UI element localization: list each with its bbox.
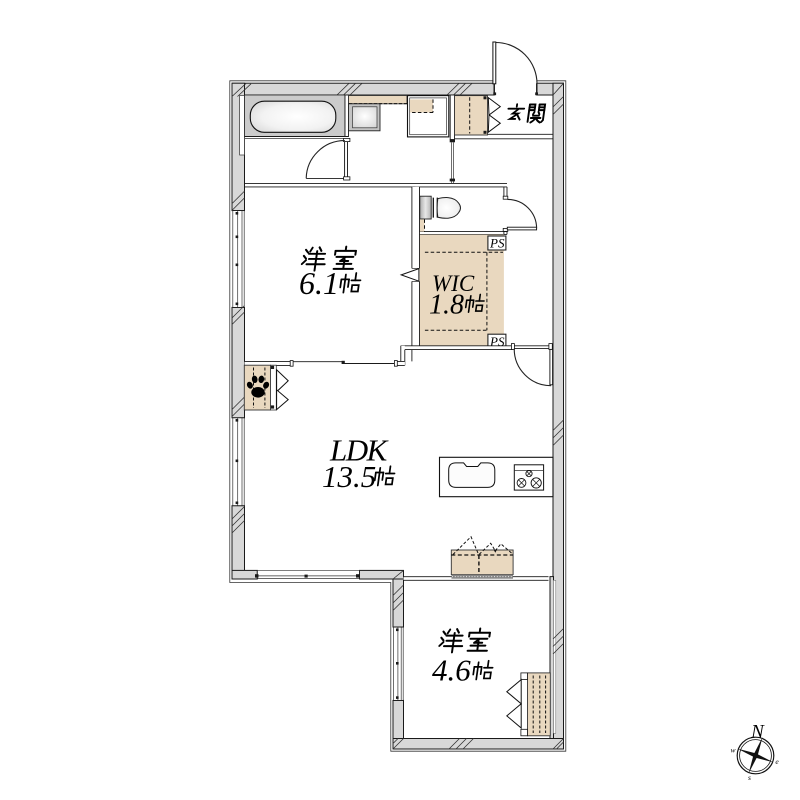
svg-text:w: w xyxy=(730,746,735,755)
svg-text:4.6: 4.6 xyxy=(432,653,471,688)
svg-text:13.5: 13.5 xyxy=(322,459,376,494)
svg-text:N: N xyxy=(750,722,765,743)
svg-text:s: s xyxy=(748,773,751,782)
svg-text:PS: PS xyxy=(489,236,505,251)
svg-text:6.1: 6.1 xyxy=(299,265,339,301)
svg-text:1.8: 1.8 xyxy=(429,290,464,321)
